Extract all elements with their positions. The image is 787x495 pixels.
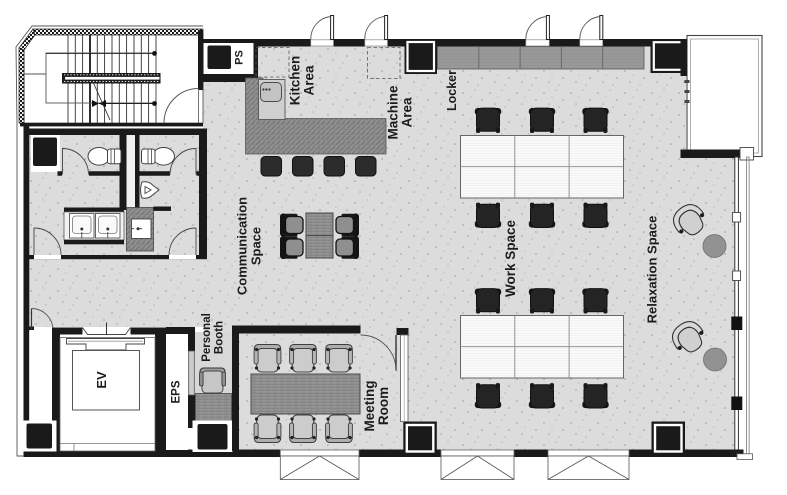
svg-text:Space: Space [249, 227, 264, 265]
svg-text:Locker: Locker [445, 70, 459, 111]
svg-text:Area: Area [400, 97, 415, 128]
svg-text:Kitchen: Kitchen [288, 56, 303, 106]
svg-text:Communication: Communication [235, 197, 250, 295]
svg-text:EPS: EPS [171, 380, 183, 403]
svg-text:Meeting: Meeting [362, 380, 377, 431]
svg-text:PS: PS [234, 50, 246, 65]
svg-text:Machine: Machine [386, 85, 401, 140]
svg-text:Work Space: Work Space [503, 219, 518, 297]
svg-text:Personal: Personal [201, 313, 213, 362]
svg-text:EV: EV [94, 371, 109, 389]
svg-text:Room: Room [376, 387, 391, 425]
svg-text:Area: Area [302, 65, 317, 96]
svg-text:Booth: Booth [214, 321, 226, 354]
svg-text:Relaxation Space: Relaxation Space [645, 216, 660, 324]
